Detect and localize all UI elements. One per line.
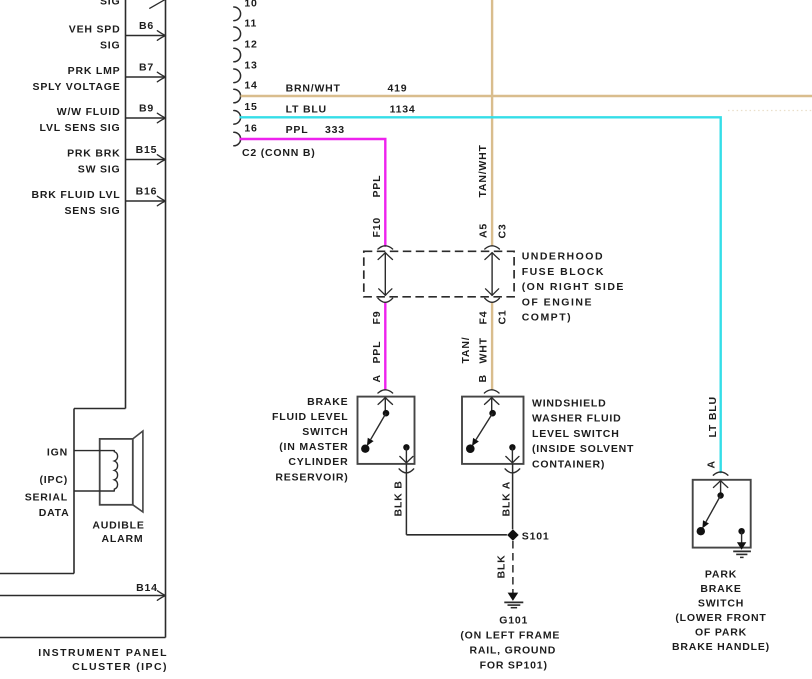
svg-text:BRAKE: BRAKE (307, 396, 348, 408)
svg-text:SIG: SIG (100, 39, 121, 51)
svg-text:B: B (477, 374, 489, 382)
svg-text:SWITCH: SWITCH (302, 426, 348, 438)
svg-text:OF ENGINE: OF ENGINE (522, 296, 593, 308)
svg-text:TAN/: TAN/ (460, 337, 472, 364)
svg-text:FUSE BLOCK: FUSE BLOCK (522, 266, 605, 278)
svg-text:BRN/WHT: BRN/WHT (286, 83, 341, 95)
svg-text:BLK: BLK (496, 555, 508, 579)
svg-text:CONTAINER): CONTAINER) (532, 458, 605, 470)
svg-text:PPL: PPL (286, 124, 309, 136)
svg-text:UNDERHOOD: UNDERHOOD (522, 251, 604, 263)
svg-text:SWITCH: SWITCH (698, 598, 744, 610)
svg-text:B14: B14 (136, 582, 158, 594)
svg-text:PARK: PARK (705, 569, 737, 581)
svg-text:FOR SP101): FOR SP101) (480, 660, 548, 672)
svg-text:B6: B6 (139, 20, 154, 32)
svg-text:BLK A: BLK A (501, 481, 513, 517)
svg-text:BRAKE: BRAKE (700, 583, 741, 595)
svg-text:WASHER FLUID: WASHER FLUID (532, 413, 622, 425)
svg-text:(LOWER FRONT: (LOWER FRONT (675, 612, 766, 624)
svg-text:B16: B16 (136, 186, 158, 198)
svg-text:(IN MASTER: (IN MASTER (279, 441, 348, 453)
svg-text:B15: B15 (136, 144, 158, 156)
svg-text:RESERVOIR): RESERVOIR) (275, 471, 348, 483)
svg-text:1134: 1134 (390, 103, 416, 115)
svg-text:AUDIBLE: AUDIBLE (92, 520, 144, 532)
svg-text:16: 16 (244, 123, 257, 135)
svg-text:F10: F10 (371, 217, 383, 238)
svg-text:12: 12 (244, 39, 257, 51)
svg-text:WHT: WHT (478, 337, 490, 363)
svg-text:PRK BRK: PRK BRK (67, 148, 120, 160)
svg-text:333: 333 (325, 124, 345, 136)
svg-text:LT BLU: LT BLU (286, 103, 327, 115)
svg-text:BLK B: BLK B (393, 480, 405, 516)
svg-text:G101: G101 (499, 615, 528, 627)
svg-text:FLUID LEVEL: FLUID LEVEL (272, 411, 348, 423)
svg-text:LEVEL SWITCH: LEVEL SWITCH (532, 428, 620, 440)
svg-text:INSTRUMENT PANEL: INSTRUMENT PANEL (38, 647, 168, 659)
svg-text:PRK LMP: PRK LMP (68, 65, 121, 77)
svg-text:C1: C1 (497, 309, 509, 324)
svg-text:B9: B9 (139, 103, 154, 115)
svg-text:ALARM: ALARM (102, 533, 144, 545)
svg-text:VEH SPD: VEH SPD (69, 24, 121, 36)
svg-text:(ON RIGHT SIDE: (ON RIGHT SIDE (522, 281, 625, 293)
svg-text:B7: B7 (139, 62, 154, 74)
svg-text:DATA: DATA (39, 507, 70, 519)
svg-text:SERIAL: SERIAL (25, 492, 68, 504)
svg-text:C2 (CONN B): C2 (CONN B) (242, 147, 316, 159)
svg-text:WINDSHIELD: WINDSHIELD (532, 398, 607, 410)
svg-text:A5: A5 (478, 223, 490, 238)
svg-text:LT BLU: LT BLU (707, 396, 719, 437)
svg-text:PPL: PPL (371, 341, 383, 364)
svg-text:IGN: IGN (47, 447, 68, 459)
svg-text:A: A (706, 460, 718, 468)
svg-text:14: 14 (244, 80, 257, 92)
svg-text:13: 13 (244, 60, 257, 72)
svg-text:10: 10 (244, 0, 257, 10)
svg-text:CLUSTER (IPC): CLUSTER (IPC) (72, 661, 168, 673)
svg-text:CYLINDER: CYLINDER (288, 456, 348, 468)
svg-text:(ON LEFT FRAME: (ON LEFT FRAME (460, 630, 560, 642)
svg-text:(IPC): (IPC) (40, 474, 69, 486)
svg-text:SW SIG: SW SIG (78, 163, 121, 175)
svg-text:RAIL, GROUND: RAIL, GROUND (469, 645, 556, 657)
svg-text:A: A (371, 374, 383, 382)
svg-text:BRK FLUID LVL: BRK FLUID LVL (32, 189, 121, 201)
svg-text:F4: F4 (478, 311, 490, 325)
svg-text:15: 15 (244, 101, 257, 113)
svg-text:F9: F9 (371, 311, 383, 325)
svg-text:C3: C3 (497, 223, 509, 238)
svg-text:SENS SIG: SENS SIG (65, 205, 121, 217)
svg-text:OF PARK: OF PARK (695, 627, 747, 639)
svg-text:SPLY VOLTAGE: SPLY VOLTAGE (33, 81, 121, 93)
svg-text:BRAKE HANDLE): BRAKE HANDLE) (672, 641, 770, 653)
svg-text:COMPT): COMPT) (522, 312, 572, 324)
svg-text:PPL: PPL (371, 175, 383, 198)
svg-text:419: 419 (388, 83, 408, 95)
svg-text:TAN/WHT: TAN/WHT (477, 144, 489, 197)
svg-text:11: 11 (244, 18, 257, 30)
svg-text:SIG: SIG (100, 0, 121, 8)
svg-text:W/W FLUID: W/W FLUID (57, 106, 121, 118)
svg-text:(INSIDE SOLVENT: (INSIDE SOLVENT (532, 443, 634, 455)
svg-text:LVL SENS SIG: LVL SENS SIG (40, 122, 121, 134)
svg-text:S101: S101 (522, 531, 550, 543)
